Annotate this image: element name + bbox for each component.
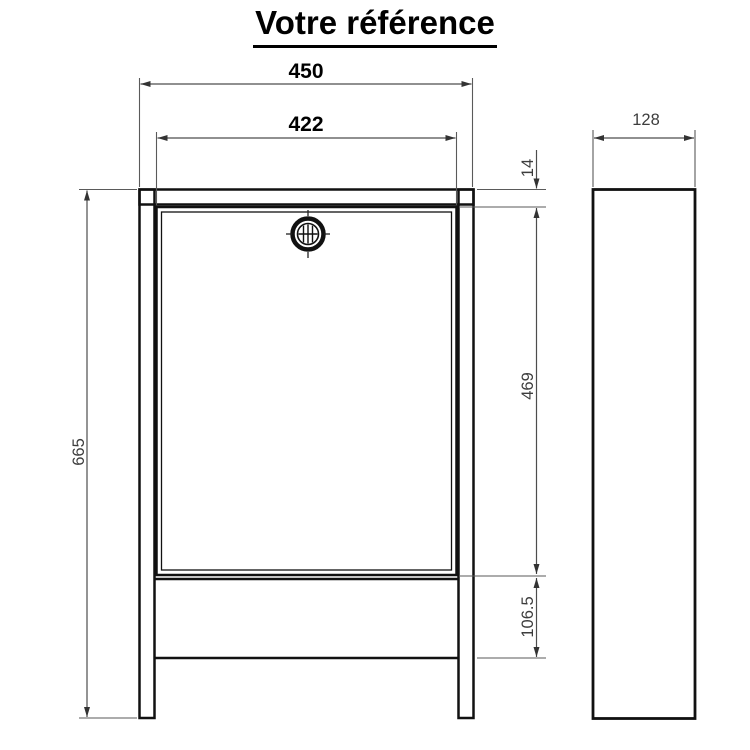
technical-drawing-page: Votre référence [0,0,750,750]
front-view [140,190,474,719]
dimension-overall-height: 665 [70,190,137,719]
dimension-depth: 128 [593,111,695,187]
dim-label-depth: 128 [632,111,660,129]
side-view-body [593,190,695,719]
dim-label-bottom-section-height: 106.5 [519,596,537,637]
cabinet-dimension-drawing: 450 422 665 14 469 [0,0,750,750]
dim-label-overall-width: 450 [288,60,323,83]
dim-label-door-width: 422 [288,113,323,136]
dimension-door-width: 422 [157,113,457,205]
cabinet-door [157,207,457,575]
cabinet-door-inner-edge [162,212,452,570]
front-top-rail [140,190,474,205]
dim-label-frame-top-offset: 14 [519,159,537,177]
side-view [593,190,695,719]
dim-label-door-height: 469 [519,372,537,400]
dimension-door-height: 469 [459,208,546,576]
dimension-bottom-section-height: 106.5 [477,578,546,658]
front-left-leg [140,190,155,719]
lock-icon [286,210,330,258]
front-right-leg [459,190,474,719]
dim-label-overall-height: 665 [70,438,88,466]
